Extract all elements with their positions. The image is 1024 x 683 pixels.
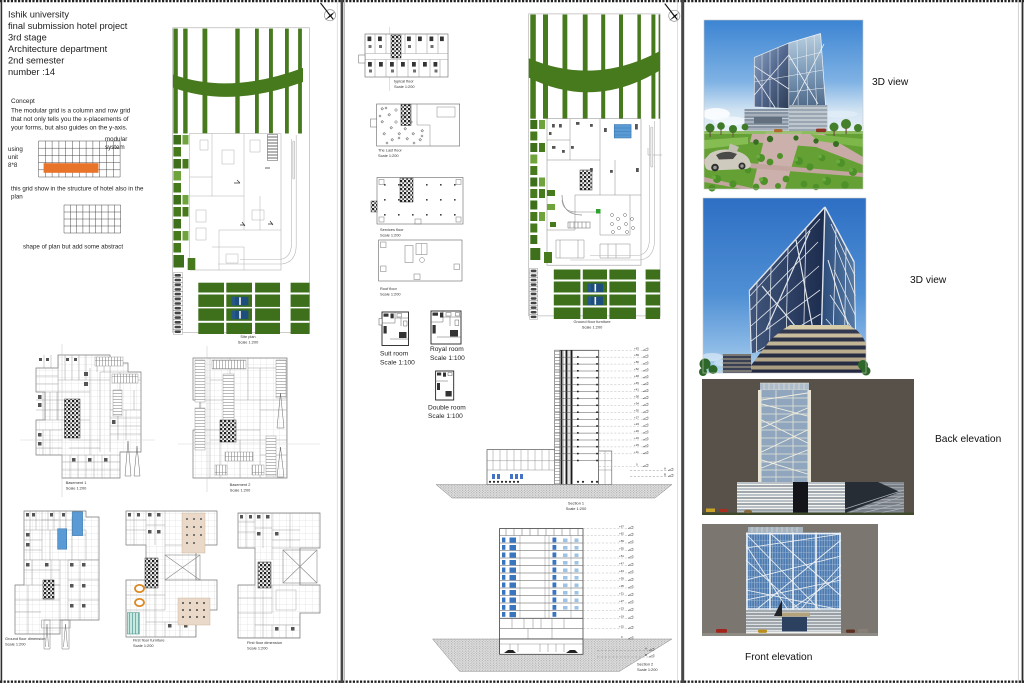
svg-text:First floor furniture: First floor furniture — [133, 638, 165, 643]
svg-text:+11: +11 — [634, 450, 639, 454]
svg-text:+16: +16 — [634, 436, 639, 440]
svg-text:unit: unit — [8, 154, 18, 161]
svg-text:this grid show in the structur: this grid show in the structure of hotel… — [11, 186, 144, 193]
svg-text:Scale 1:200: Scale 1:200 — [230, 488, 251, 493]
svg-text:+20: +20 — [634, 429, 639, 433]
svg-text:+52: +52 — [634, 367, 639, 371]
svg-text:+67: +67 — [619, 525, 624, 529]
svg-text:+59: +59 — [634, 353, 639, 357]
svg-text:Scale 1:200: Scale 1:200 — [637, 667, 658, 672]
svg-text:Scale 1:200: Scale 1:200 — [378, 153, 399, 158]
svg-text:Scale 1:200: Scale 1:200 — [394, 84, 415, 89]
svg-text:8*8: 8*8 — [8, 162, 18, 169]
svg-text:+47: +47 — [619, 562, 624, 566]
svg-text:Roof floor: Roof floor — [380, 286, 398, 291]
svg-text:Scale 1:200: Scale 1:200 — [247, 646, 268, 651]
svg-text:+19: +19 — [619, 614, 624, 618]
svg-text:Section 1: Section 1 — [568, 501, 584, 506]
svg-text:Architecture department: Architecture department — [8, 44, 108, 54]
svg-text:+48: +48 — [634, 374, 639, 378]
svg-text:Section 2: Section 2 — [637, 662, 653, 667]
svg-text:Scale 1:100: Scale 1:100 — [380, 360, 415, 367]
svg-text:B: B — [645, 653, 647, 657]
svg-text:The modular grid is a column a: The modular grid is a column and row gri… — [11, 108, 131, 115]
svg-text:3D view: 3D view — [910, 275, 947, 286]
svg-text:3rd stage: 3rd stage — [8, 33, 47, 43]
svg-text:+62: +62 — [619, 532, 624, 536]
svg-text:+39: +39 — [619, 577, 624, 581]
svg-text:Ishik university: Ishik university — [8, 10, 69, 20]
svg-text:A: A — [664, 467, 666, 471]
svg-text:+23: +23 — [619, 607, 624, 611]
svg-text:Suit room: Suit room — [380, 351, 409, 358]
svg-text:+45: +45 — [634, 381, 639, 385]
svg-text:The Last floor: The Last floor — [378, 148, 402, 153]
svg-text:Royal room: Royal room — [430, 346, 464, 353]
svg-text:+23: +23 — [634, 422, 639, 426]
svg-text:A: A — [645, 647, 647, 651]
svg-text:Scale 1:200: Scale 1:200 — [380, 233, 401, 238]
svg-text:shape of plan but add some abs: shape of plan but add some abstract — [23, 244, 123, 251]
svg-text:+38: +38 — [634, 395, 639, 399]
svg-text:+59: +59 — [619, 539, 624, 543]
svg-text:2nd semester: 2nd semester — [8, 56, 64, 66]
svg-text:+34: +34 — [634, 402, 639, 406]
svg-text:Scale 1:200: Scale 1:200 — [566, 506, 587, 511]
svg-text:Scale 1:200: Scale 1:200 — [5, 642, 26, 647]
svg-text:+51: +51 — [619, 554, 624, 558]
svg-text:+15: +15 — [619, 625, 624, 629]
svg-text:+35: +35 — [619, 584, 624, 588]
svg-text:using: using — [8, 146, 23, 153]
svg-text:+41: +41 — [634, 388, 639, 392]
svg-text:Basement 1: Basement 1 — [66, 480, 87, 485]
svg-text:+27: +27 — [634, 415, 639, 419]
svg-text:Front elevation: Front elevation — [745, 652, 812, 663]
svg-text:Site plan: Site plan — [240, 334, 255, 339]
svg-text:+30: +30 — [634, 408, 639, 412]
svg-text:Scale 1:100: Scale 1:100 — [428, 413, 463, 420]
svg-text:typical floor: typical floor — [394, 79, 414, 84]
svg-text:modular: modular — [105, 136, 127, 143]
svg-text:Scale 1:200: Scale 1:200 — [380, 292, 401, 297]
svg-text:Scale 1:200: Scale 1:200 — [582, 325, 603, 330]
svg-text:Ground floor dimension: Ground floor dimension — [5, 636, 45, 641]
svg-text:plan: plan — [11, 194, 23, 201]
svg-text:+55: +55 — [619, 547, 624, 551]
svg-text:Scale 1:200: Scale 1:200 — [238, 340, 259, 345]
svg-text:First floor dimension: First floor dimension — [247, 640, 282, 645]
svg-text:+43: +43 — [619, 569, 624, 573]
svg-text:your forms, but also guides on: your forms, but also guides on the y-axi… — [11, 125, 128, 132]
svg-text:Scale 1:200: Scale 1:200 — [66, 486, 87, 491]
svg-text:Back elevation: Back elevation — [935, 434, 1001, 445]
svg-text:Services floor: Services floor — [380, 227, 404, 232]
svg-text:system: system — [105, 144, 125, 151]
svg-text:B: B — [664, 473, 666, 477]
svg-text:number :14: number :14 — [8, 67, 55, 77]
svg-text:+56: +56 — [634, 360, 639, 364]
svg-text:that not only tells you the x-: that not only tells you the x-placements… — [11, 116, 129, 123]
svg-text:+63: +63 — [634, 346, 639, 350]
svg-text:Concept: Concept — [11, 98, 35, 105]
svg-text:Scale 1:200: Scale 1:200 — [133, 643, 154, 648]
svg-text:Scale 1:100: Scale 1:100 — [430, 355, 465, 362]
svg-text:Ground floor furniture: Ground floor furniture — [574, 319, 611, 324]
svg-text:final submission hotel project: final submission hotel project — [8, 21, 128, 31]
svg-text:Double room: Double room — [428, 405, 466, 412]
svg-text:+15: +15 — [634, 443, 639, 447]
svg-text:3D view: 3D view — [872, 77, 909, 88]
svg-text:Basement 2: Basement 2 — [230, 482, 251, 487]
svg-text:+27: +27 — [619, 599, 624, 603]
svg-text:+31: +31 — [619, 592, 624, 596]
